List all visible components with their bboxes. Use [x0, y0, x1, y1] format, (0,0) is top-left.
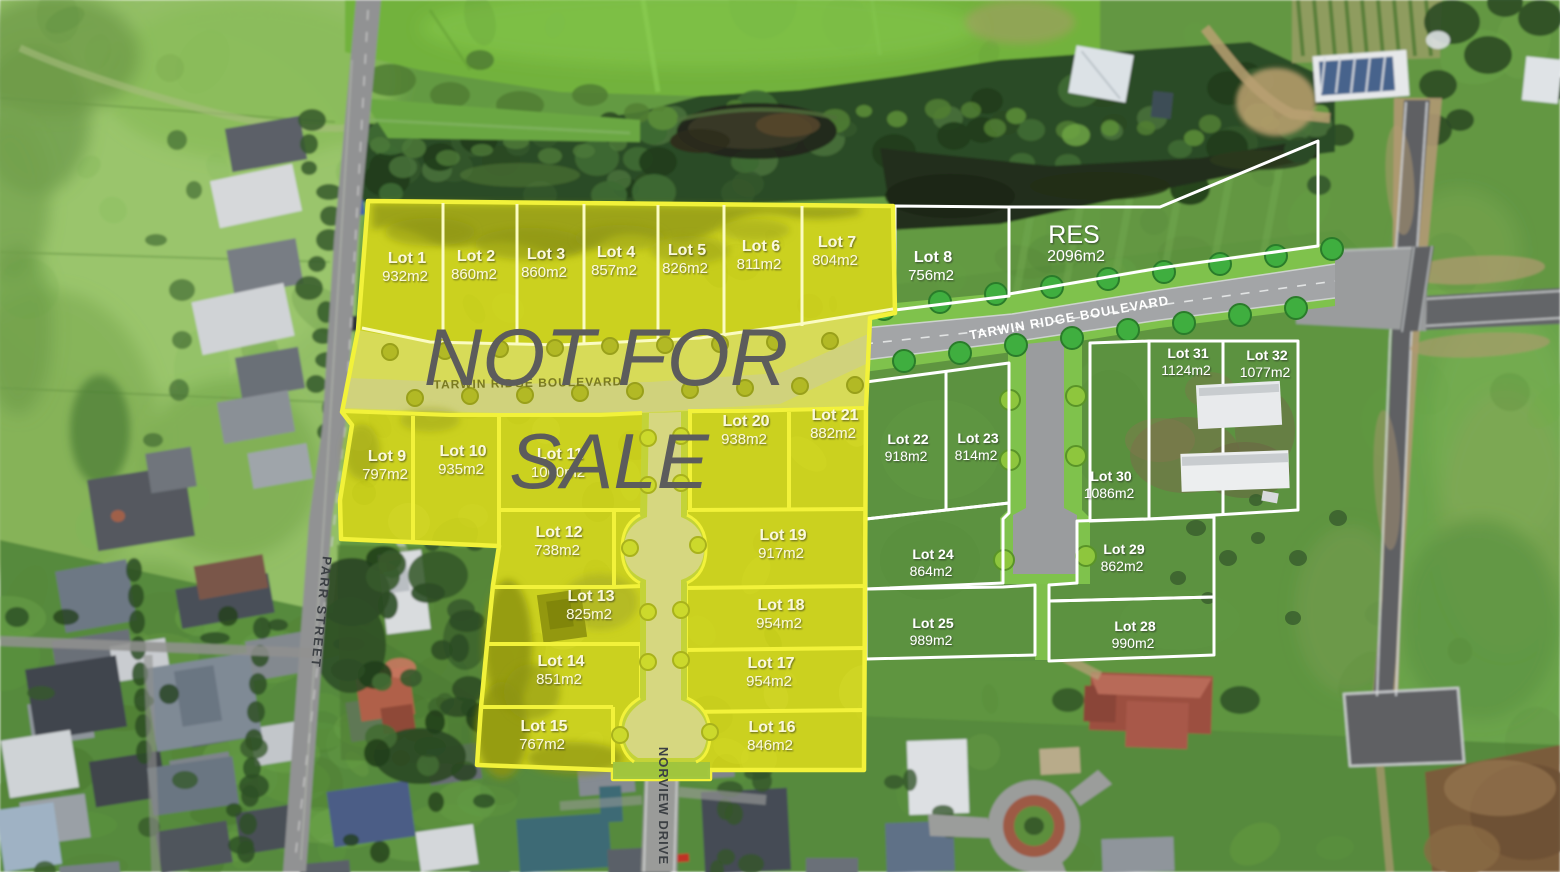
svg-text:Lot 6: Lot 6: [742, 238, 780, 255]
svg-text:Lot 22: Lot 22: [887, 431, 928, 447]
svg-text:825m2: 825m2: [566, 606, 612, 623]
svg-text:860m2: 860m2: [451, 266, 497, 283]
svg-text:1077m2: 1077m2: [1240, 364, 1291, 380]
svg-text:Lot 13: Lot 13: [567, 588, 614, 605]
svg-text:918m2: 918m2: [885, 448, 928, 464]
svg-text:Lot 28: Lot 28: [1114, 618, 1155, 634]
svg-text:864m2: 864m2: [910, 563, 953, 579]
svg-text:Lot 30: Lot 30: [1090, 468, 1131, 484]
svg-text:738m2: 738m2: [534, 542, 580, 559]
svg-text:2096m2: 2096m2: [1047, 248, 1105, 265]
svg-text:860m2: 860m2: [521, 264, 567, 281]
svg-text:Lot 3: Lot 3: [527, 246, 565, 263]
svg-text:Lot 32: Lot 32: [1246, 347, 1287, 363]
svg-text:Lot 4: Lot 4: [597, 244, 635, 261]
svg-text:Lot 9: Lot 9: [368, 448, 406, 465]
svg-text:938m2: 938m2: [721, 431, 767, 448]
svg-text:Lot 1: Lot 1: [388, 250, 426, 267]
svg-text:Lot 7: Lot 7: [818, 234, 856, 251]
svg-text:797m2: 797m2: [362, 466, 408, 483]
svg-text:804m2: 804m2: [812, 252, 858, 269]
svg-text:954m2: 954m2: [746, 673, 792, 690]
svg-text:846m2: 846m2: [747, 737, 793, 754]
svg-text:Lot 12: Lot 12: [535, 524, 582, 541]
svg-text:Lot 18: Lot 18: [757, 597, 804, 614]
svg-text:814m2: 814m2: [955, 447, 998, 463]
svg-text:Lot 2: Lot 2: [457, 248, 495, 265]
svg-text:917m2: 917m2: [758, 545, 804, 562]
svg-text:Lot 29: Lot 29: [1103, 541, 1144, 557]
svg-text:Lot 24: Lot 24: [912, 546, 953, 562]
svg-text:NOT FOR: NOT FOR: [424, 313, 788, 403]
svg-text:935m2: 935m2: [438, 461, 484, 478]
svg-text:Lot 15: Lot 15: [520, 718, 567, 735]
svg-text:756m2: 756m2: [908, 267, 954, 284]
svg-text:989m2: 989m2: [910, 632, 953, 648]
svg-text:1086m2: 1086m2: [1084, 485, 1135, 501]
svg-text:882m2: 882m2: [810, 425, 856, 442]
svg-text:811m2: 811m2: [737, 256, 782, 273]
svg-text:Lot 16: Lot 16: [748, 719, 795, 736]
svg-text:Lot 20: Lot 20: [722, 413, 769, 430]
svg-text:SALE: SALE: [509, 417, 709, 505]
svg-text:Lot 23: Lot 23: [957, 430, 998, 446]
svg-text:Lot 14: Lot 14: [537, 653, 584, 670]
svg-text:Lot 10: Lot 10: [439, 443, 486, 460]
svg-text:Lot 17: Lot 17: [747, 655, 794, 672]
svg-text:990m2: 990m2: [1112, 635, 1155, 651]
svg-text:Lot 5: Lot 5: [668, 242, 706, 259]
svg-text:954m2: 954m2: [756, 615, 802, 632]
svg-text:NORVIEW DRIVE: NORVIEW DRIVE: [656, 747, 671, 865]
svg-text:932m2: 932m2: [382, 268, 428, 285]
svg-text:1124m2: 1124m2: [1161, 362, 1211, 378]
svg-text:851m2: 851m2: [536, 671, 582, 688]
svg-text:Lot 8: Lot 8: [914, 249, 952, 266]
svg-text:862m2: 862m2: [1101, 558, 1144, 574]
svg-text:857m2: 857m2: [591, 262, 637, 279]
svg-text:767m2: 767m2: [519, 736, 565, 753]
svg-text:RES: RES: [1048, 221, 1099, 249]
svg-text:826m2: 826m2: [662, 260, 708, 277]
svg-text:Lot 21: Lot 21: [811, 407, 858, 424]
svg-text:Lot 25: Lot 25: [912, 615, 953, 631]
svg-text:Lot 19: Lot 19: [759, 527, 806, 544]
svg-text:Lot 31: Lot 31: [1167, 345, 1208, 361]
